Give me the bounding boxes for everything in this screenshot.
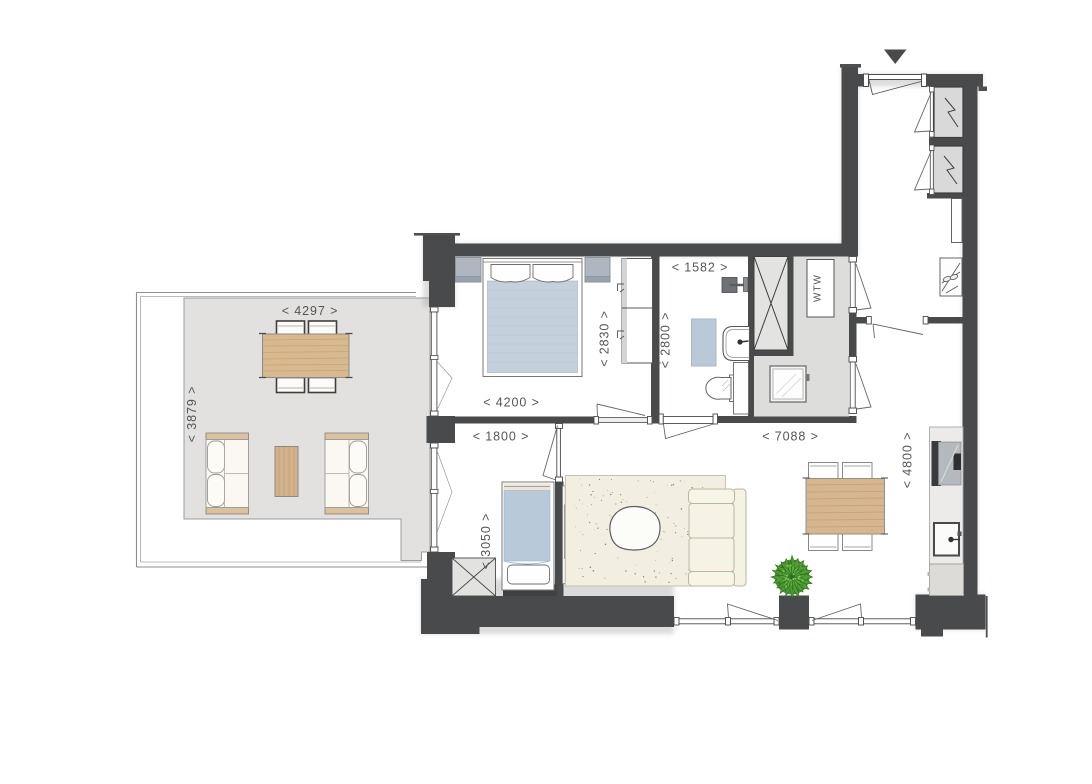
svg-text:< 4200 >: < 4200 > [483, 396, 540, 410]
svg-text:< 2800 >: < 2800 > [659, 312, 673, 369]
svg-text:< 4800 >: < 4800 > [901, 432, 915, 489]
svg-text:< 7088 >: < 7088 > [762, 430, 819, 444]
svg-text:< 2830 >: < 2830 > [598, 310, 612, 367]
svg-text:< 4297 >: < 4297 > [282, 304, 339, 318]
svg-text:< 1582 >: < 1582 > [672, 261, 729, 275]
svg-text:< 3879 >: < 3879 > [185, 386, 199, 443]
svg-text:< 3050 >: < 3050 > [479, 513, 493, 570]
svg-text:< 1800 >: < 1800 > [473, 430, 530, 444]
svg-text:WTW: WTW [813, 274, 824, 302]
